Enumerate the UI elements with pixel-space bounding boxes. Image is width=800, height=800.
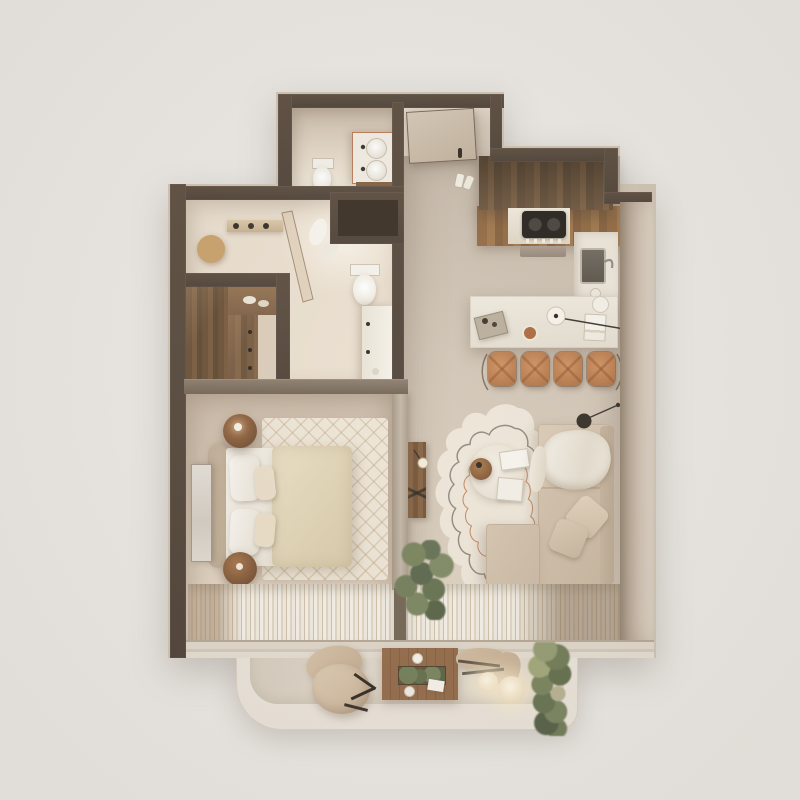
wall-kitchen-top [490,148,618,162]
balcony-tall-plant [522,642,580,736]
wall-bedroom-top [184,379,408,394]
deck-cup-1 [412,653,423,664]
wall-closet-top [170,273,290,287]
wall-closet-right [276,273,290,394]
small-bath-faucet-2 [361,167,365,171]
pendant-bulb [554,314,558,318]
floor-plan-render [0,0,800,800]
reading-lamp-shade [418,458,428,468]
wall-hall-left [392,102,404,394]
technical-shaft-void [338,200,398,236]
wall-right-lightface [620,202,654,642]
wall-top-left-block-top [278,94,504,108]
bedroom-curtains [188,584,394,642]
stool-frame-left [482,354,488,390]
kitchen-faucet [604,260,612,268]
deck-cup-2 [404,686,415,697]
deck-napkin [427,679,445,692]
living-room-plant [394,540,460,620]
glowing-lantern-large [498,676,525,703]
wall-top-left-block-left [278,94,292,200]
small-bath-faucet-1 [361,145,365,149]
glowing-lantern-small [478,672,498,692]
floor-lamp-disc [577,414,592,429]
wall-left-perimeter [170,184,186,658]
